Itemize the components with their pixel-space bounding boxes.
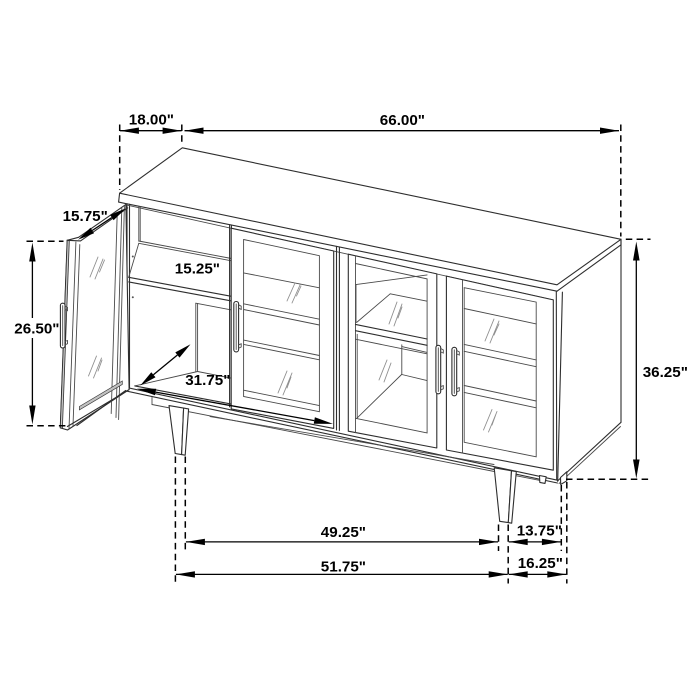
svg-text:18.00": 18.00" (129, 111, 174, 128)
svg-text:15.75": 15.75" (63, 208, 108, 225)
svg-text:16.25": 16.25" (518, 555, 563, 572)
svg-text:26.50": 26.50" (14, 321, 59, 338)
svg-text:66.00": 66.00" (380, 112, 425, 129)
svg-text:36.25": 36.25" (643, 364, 688, 381)
svg-text:49.25": 49.25" (321, 524, 366, 541)
svg-text:31.75": 31.75" (185, 372, 230, 389)
svg-text:51.75": 51.75" (321, 559, 366, 576)
svg-text:13.75": 13.75" (517, 522, 562, 539)
svg-text:15.25": 15.25" (175, 261, 220, 278)
